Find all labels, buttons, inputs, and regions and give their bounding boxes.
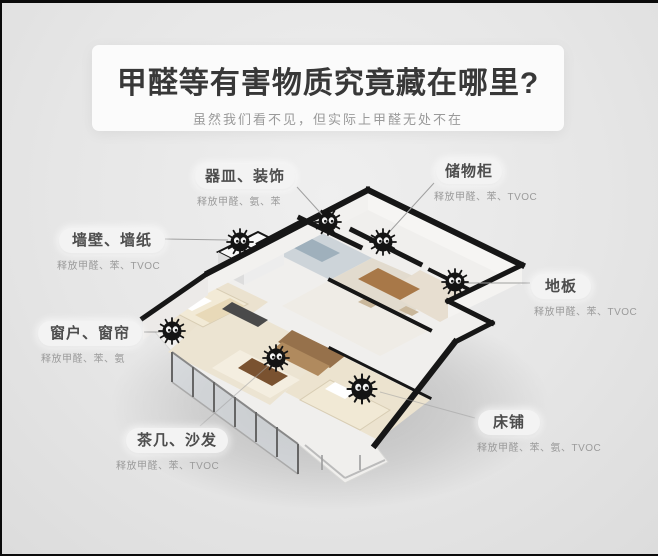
callout-floor-detail: 释放甲醛、苯、TVOC bbox=[534, 303, 637, 318]
connector-vessels bbox=[297, 187, 326, 219]
callout-vessels-pill: 器皿、装饰 bbox=[195, 164, 295, 189]
callout-vessels: 器皿、装饰 释放甲醛、氨、苯 bbox=[195, 164, 295, 208]
callout-sofa-detail: 释放甲醛、苯、TVOC bbox=[116, 457, 228, 472]
connector-wall bbox=[165, 239, 228, 240]
callout-sofa: 茶几、沙发 释放甲醛、苯、TVOC bbox=[116, 428, 228, 472]
callout-wall-detail: 释放甲醛、苯、TVOC bbox=[57, 257, 165, 272]
callout-storage-pill: 储物柜 bbox=[436, 159, 502, 184]
callout-floor-pill: 地板 bbox=[531, 274, 591, 299]
callout-floor: 地板 释放甲醛、苯、TVOC bbox=[531, 274, 637, 318]
callout-storage: 储物柜 释放甲醛、苯、TVOC bbox=[434, 159, 537, 203]
callout-bed-pill: 床铺 bbox=[478, 410, 540, 435]
callout-wall: 墙壁、墙纸 释放甲醛、苯、TVOC bbox=[57, 228, 165, 272]
callout-storage-detail: 释放甲醛、苯、TVOC bbox=[434, 188, 537, 203]
callout-vessels-detail: 释放甲醛、氨、苯 bbox=[197, 193, 295, 208]
callout-wall-pill: 墙壁、墙纸 bbox=[59, 228, 165, 253]
callout-window-detail: 释放甲醛、苯、氨 bbox=[41, 350, 142, 365]
callout-window: 窗户、窗帘 释放甲醛、苯、氨 bbox=[38, 321, 142, 365]
callout-sofa-pill: 茶几、沙发 bbox=[126, 428, 228, 453]
callout-bed-detail: 释放甲醛、苯、氨、TVOC bbox=[477, 439, 601, 454]
callout-bed: 床铺 释放甲醛、苯、氨、TVOC bbox=[477, 410, 601, 454]
infographic-canvas: 甲醛等有害物质究竟藏在哪里? 虽然我们看不见，但实际上甲醛无处不在 bbox=[0, 0, 658, 556]
callout-window-pill: 窗户、窗帘 bbox=[38, 321, 142, 346]
